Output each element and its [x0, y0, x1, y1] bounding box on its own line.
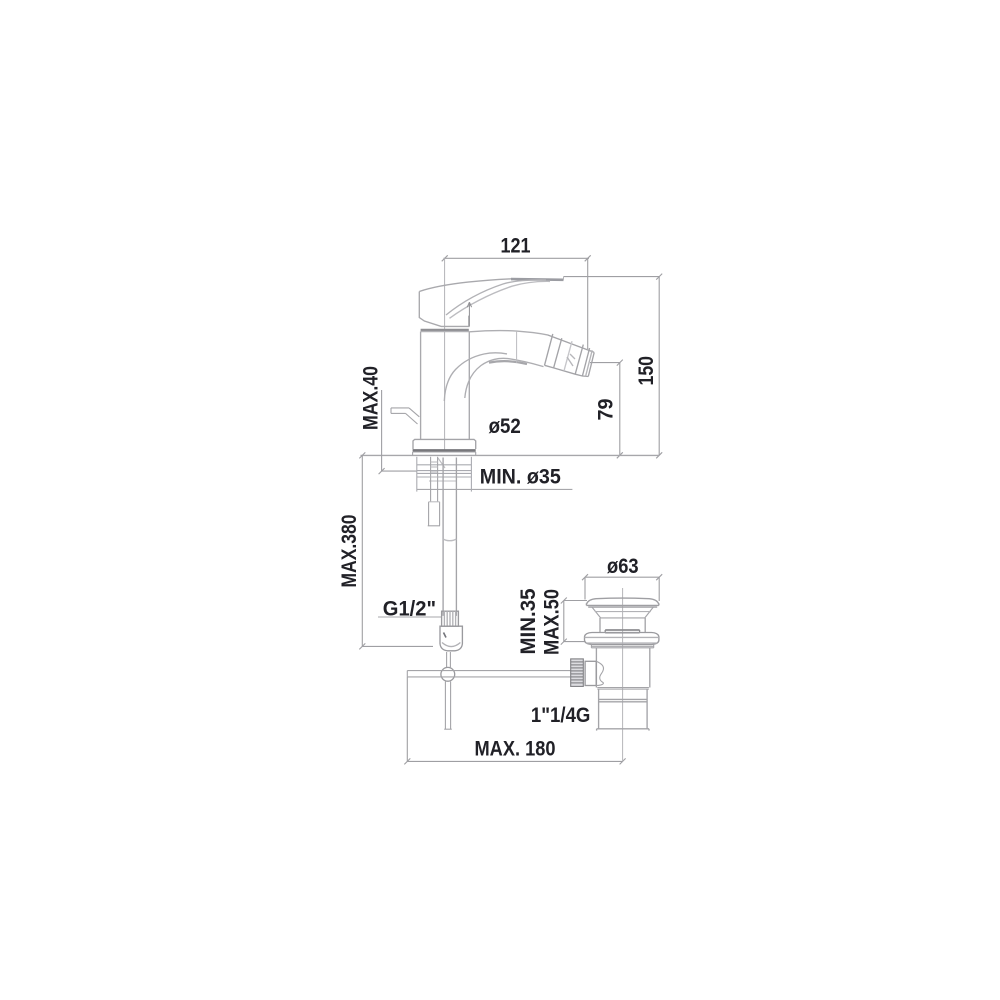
svg-text:150: 150: [635, 356, 658, 386]
svg-text:MIN.35: MIN.35: [517, 588, 540, 654]
svg-text:MIN. ø35: MIN. ø35: [480, 466, 561, 489]
svg-text:MAX.50: MAX.50: [541, 589, 564, 655]
svg-text:MAX.380: MAX.380: [338, 515, 361, 588]
svg-text:1"1/4G: 1"1/4G: [531, 704, 591, 727]
svg-text:MAX. 180: MAX. 180: [475, 738, 556, 761]
svg-text:ø52: ø52: [489, 415, 521, 438]
svg-text:MAX.40: MAX.40: [360, 366, 383, 430]
svg-text:G1/2": G1/2": [383, 597, 436, 620]
svg-text:ø63: ø63: [607, 555, 639, 578]
svg-text:121: 121: [501, 234, 531, 257]
svg-text:79: 79: [595, 399, 618, 421]
